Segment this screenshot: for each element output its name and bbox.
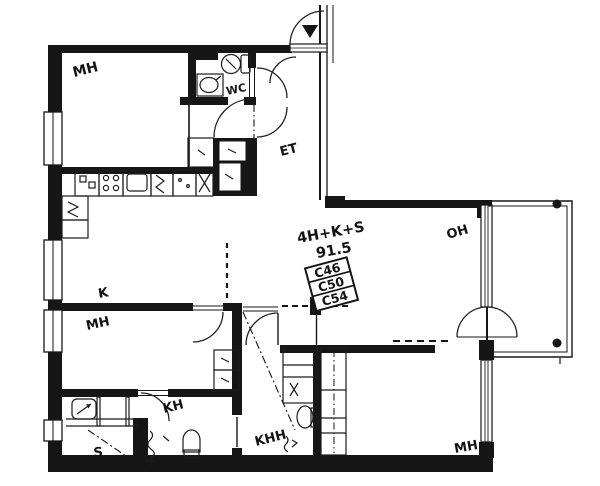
room-label-wc: WC <box>225 81 247 98</box>
balcony-column-top <box>553 200 562 209</box>
room-labels: MH WC ET K MH KH KHH S OH MH <box>71 59 479 461</box>
doors <box>141 11 517 421</box>
window-left-1 <box>44 112 62 165</box>
room-label-living: OH <box>445 222 470 242</box>
room-label-bedroom-mid: MH <box>85 314 111 334</box>
exterior-walls <box>48 45 494 472</box>
bedroom-mid-door-swing <box>193 312 223 342</box>
balcony-column-bottom <box>553 339 562 348</box>
window-left-2 <box>44 240 62 300</box>
kitchen-counter <box>62 170 213 238</box>
window-bedroom-bottom <box>481 360 492 442</box>
window-left-sauna <box>44 420 62 441</box>
room-label-bedroom-top: MH <box>71 59 100 81</box>
sauna-fixtures <box>66 397 138 426</box>
window-wall-living-balcony <box>481 205 492 307</box>
floor-plan-page: MH WC ET K MH KH KHH S OH MH 4H+K+S 91.5… <box>0 0 600 486</box>
boundary-lines <box>88 105 448 467</box>
room-label-bathroom: KH <box>161 397 185 417</box>
bedroom-bottom-wardrobe <box>321 348 346 455</box>
apartment-info: 4H+K+S 91.5 C46 C50 C54 <box>296 219 366 311</box>
room-label-bedroom-bottom: MH <box>453 438 479 457</box>
lobby-door-swing <box>257 107 287 137</box>
balcony <box>488 200 572 365</box>
floor-plan: MH WC ET K MH KH KHH S OH MH 4H+K+S 91.5… <box>0 0 600 486</box>
wc-door-swing <box>257 68 287 98</box>
entrance-arrow-icon <box>302 25 318 38</box>
room-label-entry: ET <box>278 141 299 160</box>
room-label-utility: KHH <box>253 428 288 450</box>
room-label-sauna: S <box>93 445 104 461</box>
entry-inner-door-swing <box>270 57 296 83</box>
room-label-kitchen: K <box>97 285 110 302</box>
shower-drain-icon <box>148 431 154 458</box>
interior-walls <box>48 45 435 462</box>
window-left-3 <box>44 310 62 352</box>
utility-fixtures <box>283 350 318 452</box>
kh-toilet-icon <box>183 430 200 452</box>
